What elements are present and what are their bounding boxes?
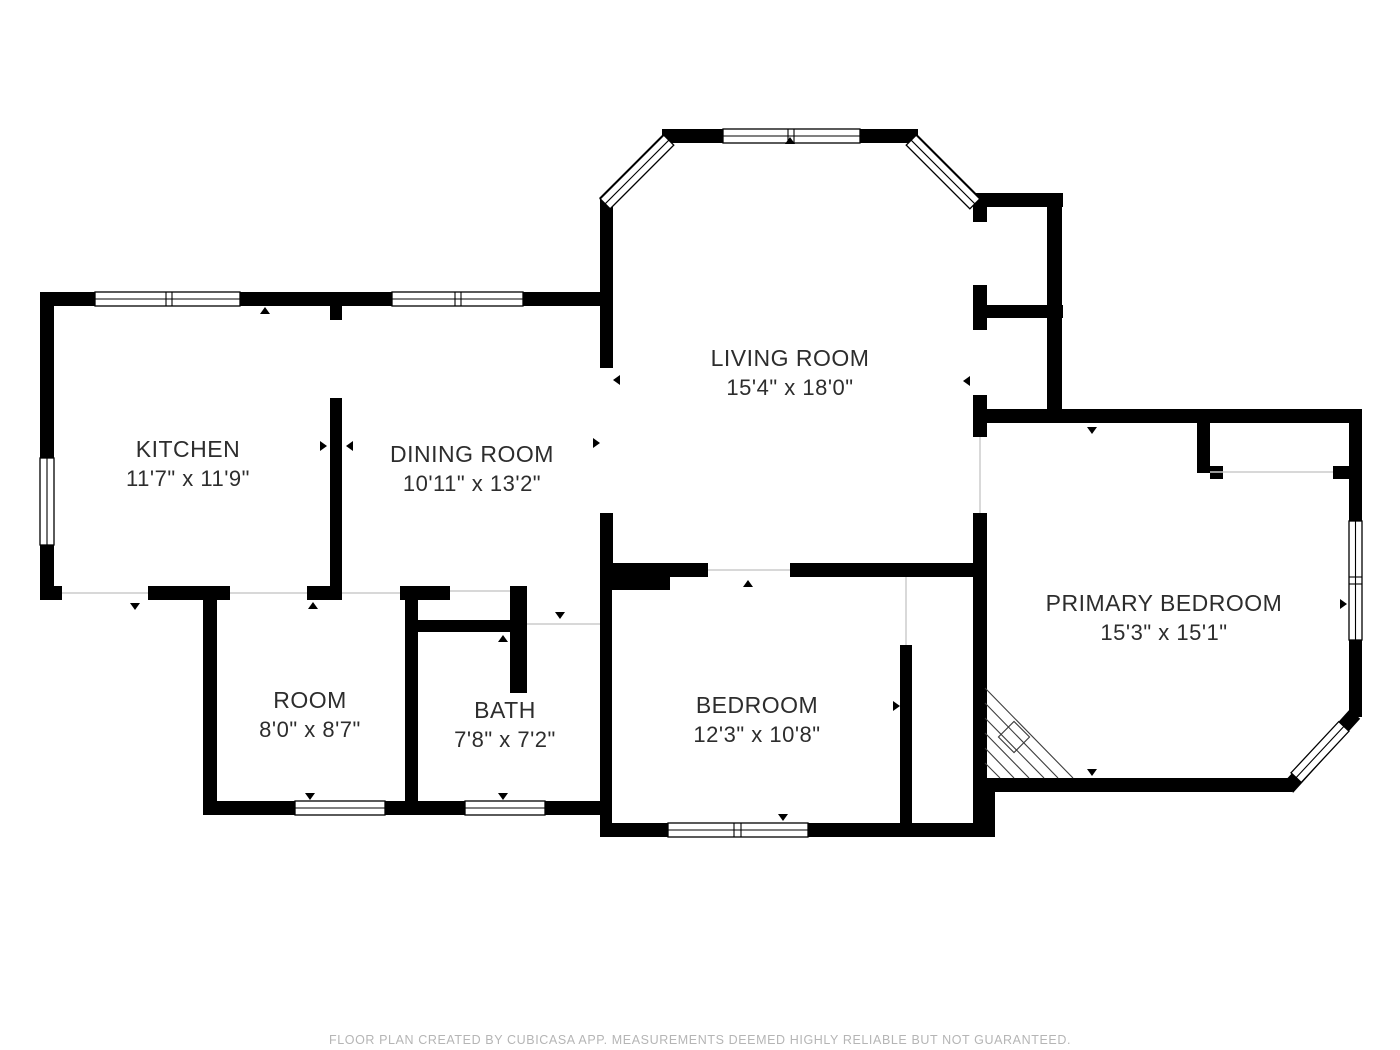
- door-marker: [260, 307, 270, 314]
- room-name: PRIMARY BEDROOM: [1046, 590, 1283, 616]
- window-room-bottom: [295, 801, 385, 815]
- door-marker: [320, 441, 327, 451]
- room-dims: 7'8" x 7'2": [454, 727, 556, 752]
- staircase: [985, 688, 1073, 778]
- window-bay-right: [906, 135, 980, 209]
- room-dims: 11'7" x 11'9": [126, 466, 250, 491]
- room-name: LIVING ROOM: [711, 345, 870, 371]
- room-dims: 15'3" x 15'1": [1100, 620, 1227, 645]
- room-name: BATH: [474, 697, 536, 723]
- door-marker: [305, 793, 315, 800]
- door-marker: [498, 793, 508, 800]
- window-dining-top: [392, 292, 523, 306]
- room-labels: KITCHEN 11'7" x 11'9" DINING ROOM 10'11"…: [126, 345, 1282, 752]
- room-name: DINING ROOM: [390, 441, 554, 467]
- door-marker: [893, 701, 900, 711]
- room-label-kitchen: KITCHEN 11'7" x 11'9": [126, 436, 250, 491]
- door-marker: [308, 602, 318, 609]
- room-dims: 10'11" x 13'2": [403, 471, 541, 496]
- room-label-bath: BATH 7'8" x 7'2": [454, 697, 556, 752]
- door-marker: [1087, 427, 1097, 434]
- window-bath-bottom: [465, 801, 545, 815]
- window-bay-left: [600, 135, 674, 209]
- floor-plan-page: KITCHEN 11'7" x 11'9" DINING ROOM 10'11"…: [0, 0, 1400, 1050]
- room-dims: 8'0" x 8'7": [259, 717, 361, 742]
- room-label-primary-bedroom: PRIMARY BEDROOM 15'3" x 15'1": [1046, 590, 1283, 645]
- room-name: ROOM: [273, 687, 347, 713]
- door-marker: [613, 375, 620, 385]
- window-kitchen-left: [40, 458, 54, 545]
- room-dims: 15'4" x 18'0": [726, 375, 853, 400]
- door-marker: [130, 603, 140, 610]
- door-marker: [346, 441, 353, 451]
- door-marker: [743, 580, 753, 587]
- window-bedroom-bottom: [668, 823, 808, 837]
- window-primary-diagonal: [1291, 722, 1349, 783]
- window-kitchen-top: [95, 292, 240, 306]
- door-marker: [555, 612, 565, 619]
- footer-disclaimer: FLOOR PLAN CREATED BY CUBICASA APP. MEAS…: [329, 1033, 1071, 1047]
- window-primary-right: [1349, 521, 1362, 640]
- room-name: KITCHEN: [136, 436, 240, 462]
- room-label-living-room: LIVING ROOM 15'4" x 18'0": [711, 345, 870, 400]
- door-marker: [593, 438, 600, 448]
- door-marker: [778, 814, 788, 821]
- room-label-room: ROOM 8'0" x 8'7": [259, 687, 361, 742]
- room-name: BEDROOM: [696, 692, 818, 718]
- room-label-bedroom: BEDROOM 12'3" x 10'8": [693, 692, 820, 747]
- floor-plan: KITCHEN 11'7" x 11'9" DINING ROOM 10'11"…: [0, 0, 1400, 1050]
- door-marker: [1087, 769, 1097, 776]
- door-marker: [1340, 599, 1347, 609]
- room-dims: 12'3" x 10'8": [693, 722, 820, 747]
- room-label-dining-room: DINING ROOM 10'11" x 13'2": [390, 441, 554, 496]
- door-marker: [498, 635, 508, 642]
- door-marker: [963, 376, 970, 386]
